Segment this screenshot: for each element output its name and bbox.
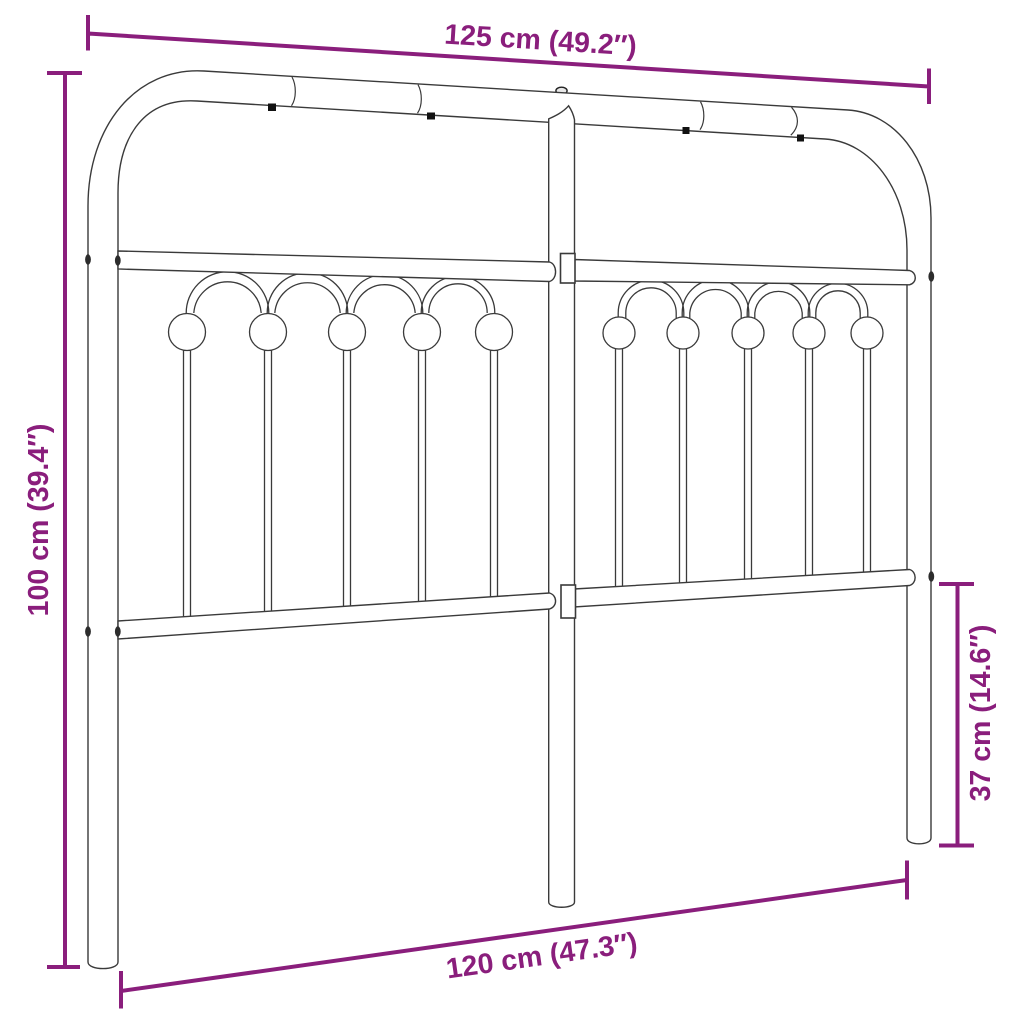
svg-text:120 cm (47.3″): 120 cm (47.3″): [444, 927, 639, 986]
svg-text:100 cm (39.4″): 100 cm (39.4″): [23, 424, 55, 617]
svg-text:37 cm (14.6″): 37 cm (14.6″): [965, 625, 997, 802]
